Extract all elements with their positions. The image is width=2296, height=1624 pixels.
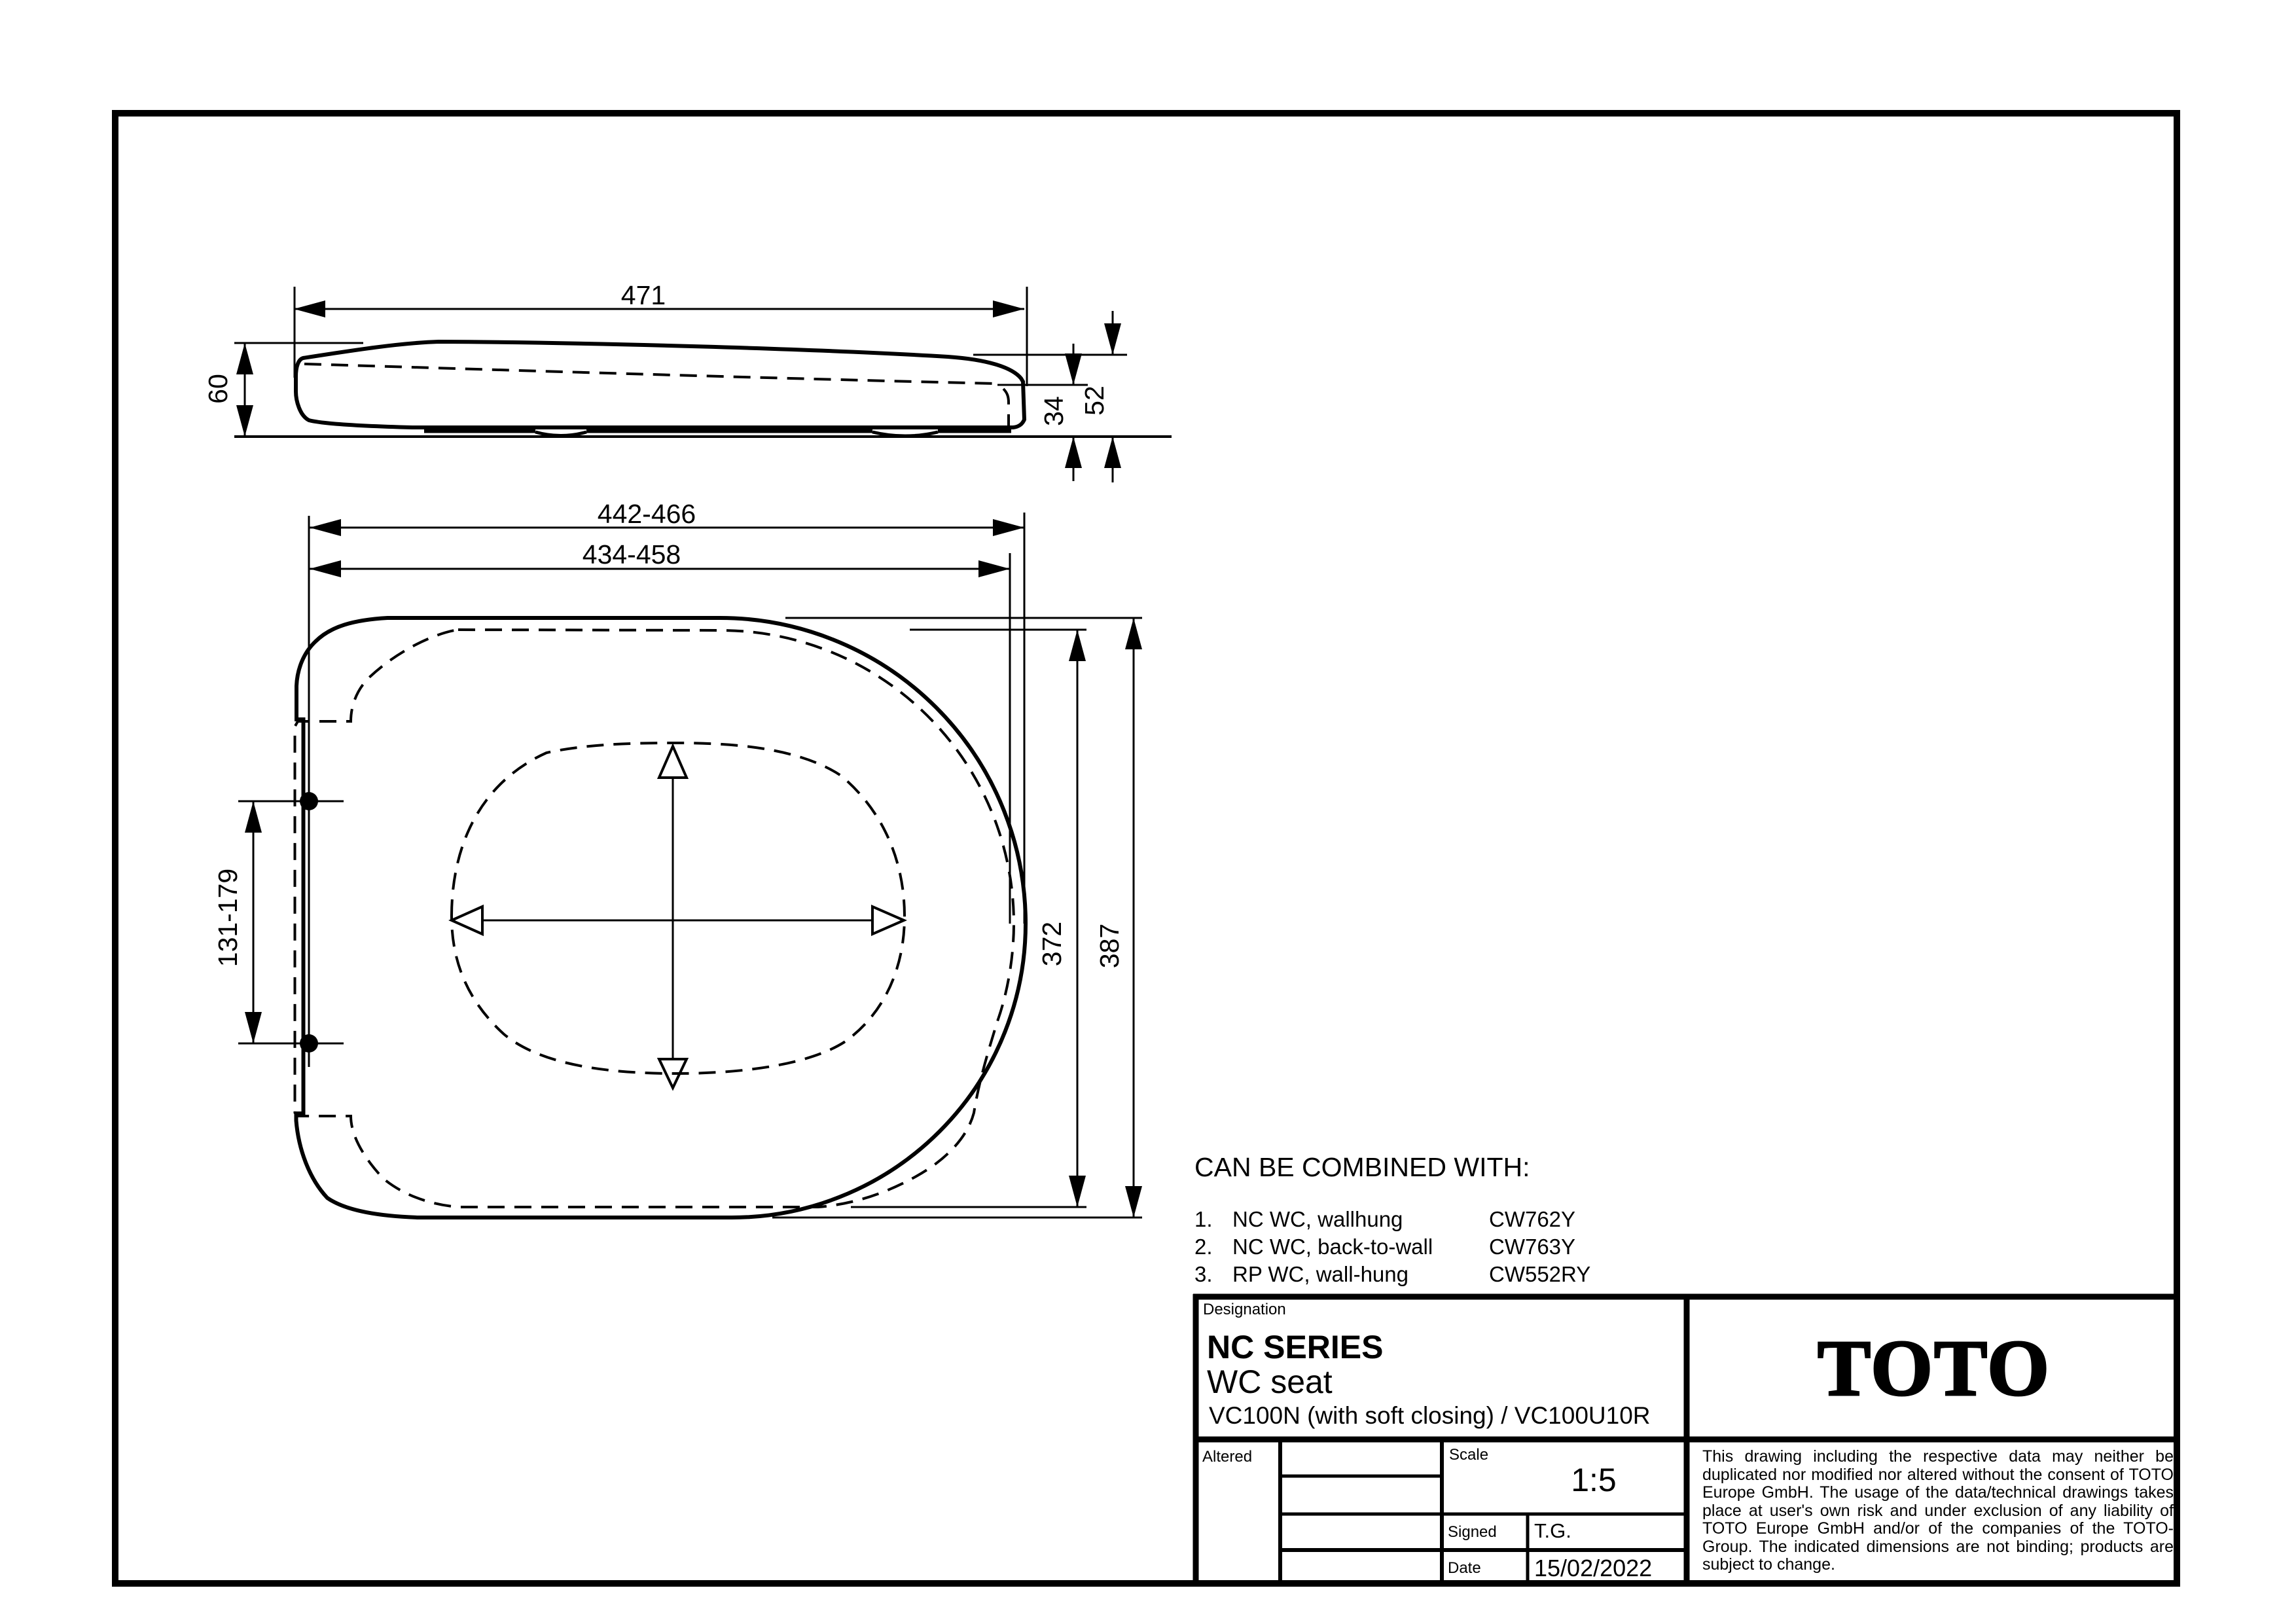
svg-text:131-179: 131-179 (213, 869, 243, 967)
svg-text:NC SERIES: NC SERIES (1207, 1329, 1384, 1365)
svg-text:Scale: Scale (1449, 1446, 1488, 1464)
svg-text:3.: 3. (1194, 1262, 1213, 1286)
svg-text:VC100N (with soft closing) / V: VC100N (with soft closing) / VC100U10R (1209, 1402, 1651, 1429)
svg-text:Signed: Signed (1448, 1523, 1497, 1541)
svg-text:Designation: Designation (1203, 1301, 1286, 1318)
svg-text:NC WC, back-to-wall: NC WC, back-to-wall (1232, 1235, 1433, 1259)
svg-text:387: 387 (1094, 924, 1124, 968)
svg-text:CAN BE COMBINED WITH:: CAN BE COMBINED WITH: (1194, 1152, 1530, 1182)
svg-text:1:5: 1:5 (1571, 1462, 1617, 1498)
svg-text:TOTO: TOTO (1818, 1324, 2051, 1413)
svg-text:15/02/2022: 15/02/2022 (1534, 1555, 1652, 1581)
svg-text:CW763Y: CW763Y (1489, 1235, 1575, 1259)
svg-text:52: 52 (1079, 386, 1109, 416)
svg-text:471: 471 (621, 280, 666, 310)
svg-text:Date: Date (1448, 1559, 1481, 1577)
svg-text:WC seat: WC seat (1207, 1363, 1333, 1400)
svg-text:442-466: 442-466 (598, 499, 696, 529)
svg-text:434-458: 434-458 (583, 539, 681, 569)
svg-text:Altered: Altered (1202, 1448, 1252, 1466)
svg-text:T.G.: T.G. (1534, 1519, 1571, 1542)
svg-text:NC WC, wallhung: NC WC, wallhung (1232, 1207, 1403, 1231)
svg-text:34: 34 (1039, 396, 1069, 426)
svg-text:RP WC, wall-hung: RP WC, wall-hung (1232, 1262, 1408, 1286)
svg-text:2.: 2. (1194, 1235, 1213, 1259)
svg-text:1.: 1. (1194, 1207, 1213, 1231)
svg-text:60: 60 (203, 374, 233, 404)
svg-text:CW762Y: CW762Y (1489, 1207, 1575, 1231)
svg-text:CW552RY: CW552RY (1489, 1262, 1590, 1286)
svg-text:372: 372 (1037, 922, 1067, 966)
